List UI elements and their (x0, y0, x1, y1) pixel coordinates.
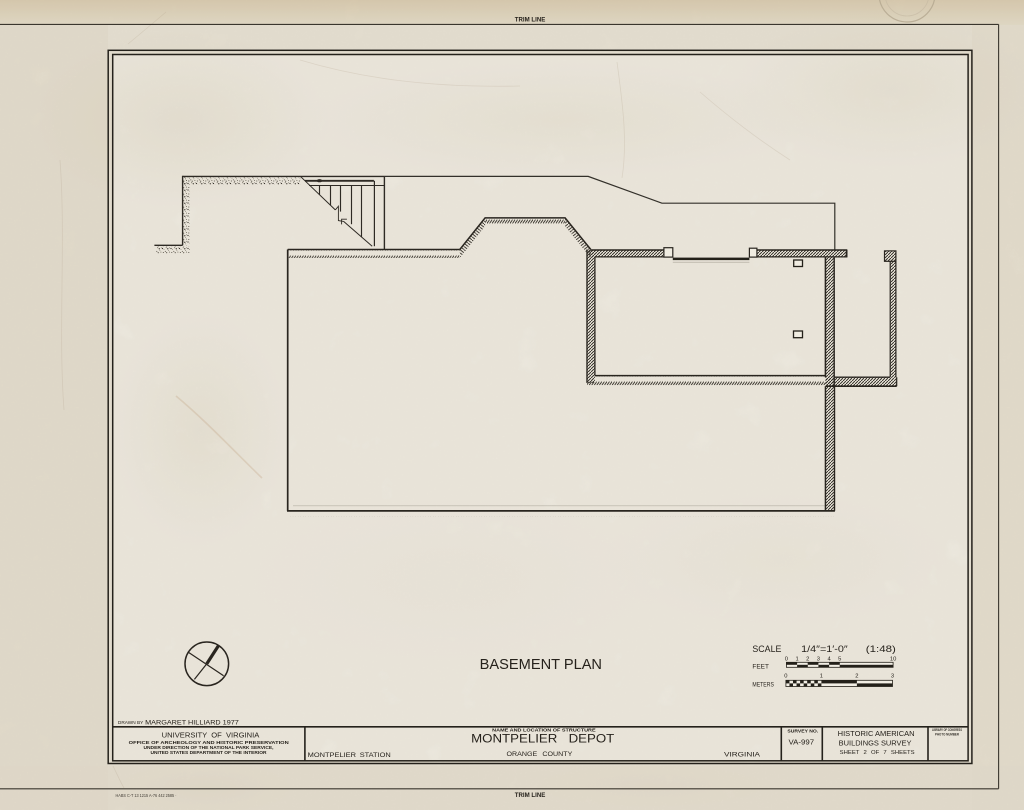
svg-text:MONTPELIER STATION: MONTPELIER STATION (308, 752, 391, 759)
svg-text:METERS: METERS (752, 682, 774, 689)
svg-text:SURVEY NO.: SURVEY NO. (787, 728, 818, 733)
svg-text:HISTORIC AMERICAN: HISTORIC AMERICAN (838, 729, 915, 738)
svg-text:FEET: FEET (752, 663, 769, 670)
svg-text:SHEET 2 OF 7 SHEETS: SHEET 2 OF 7 SHEETS (840, 750, 915, 756)
svg-text:10: 10 (890, 657, 896, 663)
svg-text:3: 3 (891, 674, 894, 680)
svg-text:MONTPELIER DEPOT: MONTPELIER DEPOT (471, 732, 615, 746)
svg-text:HABS C-T 13 1215 A-76 442 2585: HABS C-T 13 1215 A-76 442 2585 · (116, 793, 177, 798)
svg-text:3: 3 (817, 657, 820, 663)
svg-text:BUILDINGS SURVEY: BUILDINGS SURVEY (839, 738, 912, 747)
svg-text:VIRGINIA: VIRGINIA (724, 751, 761, 758)
svg-text:TRIM LINE: TRIM LINE (515, 792, 546, 799)
svg-text:(1:48): (1:48) (866, 644, 896, 654)
svg-text:SCALE: SCALE (752, 644, 781, 654)
svg-text:1/4″=1′-0″: 1/4″=1′-0″ (801, 644, 848, 654)
svg-text:5: 5 (838, 657, 841, 663)
svg-text:TRIM LINE: TRIM LINE (515, 17, 546, 24)
svg-text:ORANGE COUNTY: ORANGE COUNTY (507, 751, 573, 758)
svg-text:1: 1 (820, 674, 823, 680)
svg-text:0: 0 (785, 657, 788, 663)
svg-text:MARGARET HILLIARD 1977: MARGARET HILLIARD 1977 (145, 719, 239, 726)
svg-text:VA-997: VA-997 (789, 738, 815, 747)
svg-text:2: 2 (806, 657, 809, 663)
svg-text:UNIVERSITY OF VIRGINIA: UNIVERSITY OF VIRGINIA (162, 731, 260, 740)
svg-text:BASEMENT PLAN: BASEMENT PLAN (480, 657, 602, 673)
svg-text:0: 0 (784, 674, 787, 680)
svg-text:1: 1 (795, 657, 798, 663)
svg-text:UNITED STATES DEPARTMENT OF TH: UNITED STATES DEPARTMENT OF THE INTERIOR (151, 750, 268, 755)
svg-text:DRAWN BY: DRAWN BY (118, 720, 143, 725)
svg-text:PHOTO NUMBER: PHOTO NUMBER (935, 732, 959, 736)
svg-text:2: 2 (855, 674, 858, 680)
